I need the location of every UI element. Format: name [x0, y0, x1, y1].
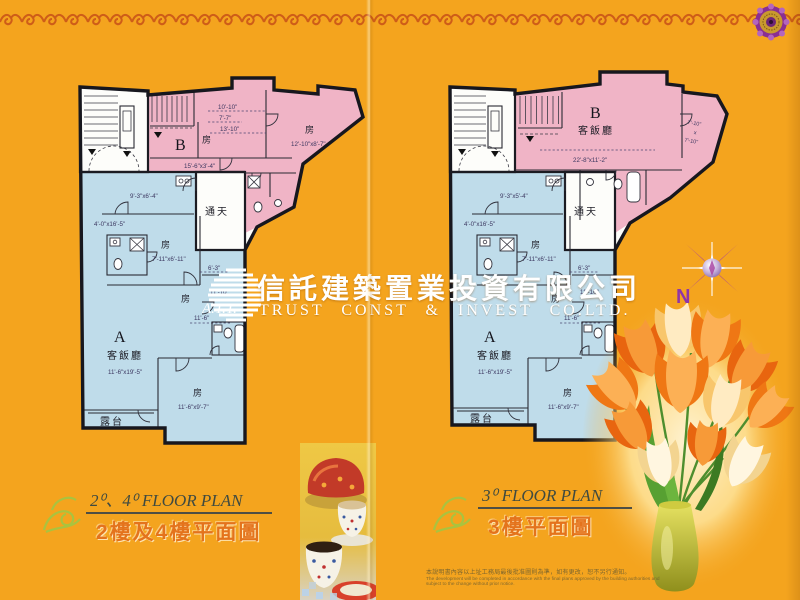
dim-label: 11'-6"x19'-5"	[108, 369, 142, 376]
room-label: 房	[161, 239, 170, 250]
room-label: 房	[181, 293, 190, 304]
dim-label: 4'-0"x16'-5"	[94, 221, 125, 228]
dim-label: 11'-6"x19'-5"	[478, 369, 512, 376]
dim-label: 7'-7"	[219, 115, 231, 122]
caption-right-zh: 3樓平面圖	[488, 511, 632, 541]
caption-left-zh: 2樓及4樓平面圖	[96, 516, 272, 546]
room-label: 房	[193, 387, 202, 398]
room-label: 客飯廳	[578, 124, 614, 137]
caption-left-en: 2⁰、4⁰ FLOOR PLAN	[86, 486, 272, 514]
tea-set-photo	[300, 443, 376, 600]
dim-label: 13'-10"	[220, 126, 239, 133]
dim-label: 7'-11"x6'-11"	[152, 256, 186, 263]
floral-flourish-icon	[38, 486, 86, 536]
disclaimer: 本說明書內容以上址工務局最後批准圖則為準，如有更改，恕不另行通知。 The de…	[426, 567, 676, 587]
room-label: 客飯廳	[107, 349, 143, 362]
room-label: 通天	[205, 206, 229, 218]
unit-label: A	[114, 329, 126, 346]
unit-label: B	[590, 105, 601, 122]
logo-text: A.T.T.	[202, 301, 237, 317]
dim-label: 15'-6"x3'-4"	[184, 163, 215, 170]
room-label: 房	[305, 124, 314, 135]
dim-label: 9'-3"x6'-4"	[130, 193, 158, 200]
dim-label: 11'-6"x9'-7"	[548, 404, 579, 411]
ornamental-border	[0, 11, 800, 29]
dim-label: 9'-3"x5'-4"	[500, 193, 528, 200]
compass-north-label: N	[676, 286, 690, 309]
floral-flourish-icon	[428, 486, 476, 536]
disclaimer-en: The development will be completed in acc…	[426, 577, 676, 587]
caption-left: 2⁰、4⁰ FLOOR PLAN 2樓及4樓平面圖	[86, 486, 272, 546]
page-fold	[366, 0, 374, 600]
unit-label: B	[175, 137, 186, 154]
disclaimer-zh: 本說明書內容以上址工務局最後批准圖則為準，如有更改，恕不另行通知。	[426, 567, 676, 576]
tulip-bouquet-image: .t-or{--p1:#EF7714;--p2:#FCB055;} .t-or2…	[583, 293, 800, 600]
room-label: 露台	[100, 415, 124, 428]
dim-label: 11'-6"x9'-7"	[178, 404, 209, 411]
floor-plan-left: 通天 B 房 10'-10" 7'-7" 13'-10" 房	[62, 70, 372, 450]
caption-right: 3⁰ FLOOR PLAN 3樓平面圖	[478, 486, 632, 541]
room-label: 露台	[470, 412, 494, 425]
compass-star-icon	[682, 242, 742, 300]
room-label: 通天	[574, 206, 598, 218]
company-name-en: TRUST CONST & INVEST CO.LTD.	[259, 302, 630, 320]
room-label: 客飯廳	[477, 349, 513, 362]
room-label: 房	[531, 239, 540, 250]
page-edge-shade	[786, 0, 800, 600]
room-label: 房	[563, 387, 572, 398]
dim-label: 12'-10"x8'-7"	[291, 141, 326, 148]
company-name-zh: 信託建築置業投資有限公司	[257, 267, 641, 307]
company-header: A.T.T. 信託建築置業投資有限公司 TRUST CONST & INVEST…	[202, 262, 602, 332]
brochure-page: 通天 B 房 10'-10" 7'-7" 13'-10" 房	[0, 0, 800, 600]
dim-label: 22'-8"x11'-2"	[573, 157, 607, 164]
rosette-ornament-icon	[752, 3, 790, 41]
dim-label: 4'-0"x16'-5"	[464, 221, 495, 228]
caption-right-en: 3⁰ FLOOR PLAN	[478, 486, 632, 509]
dim-label: 10'-10"	[218, 104, 237, 111]
room-label: 房	[202, 134, 211, 145]
